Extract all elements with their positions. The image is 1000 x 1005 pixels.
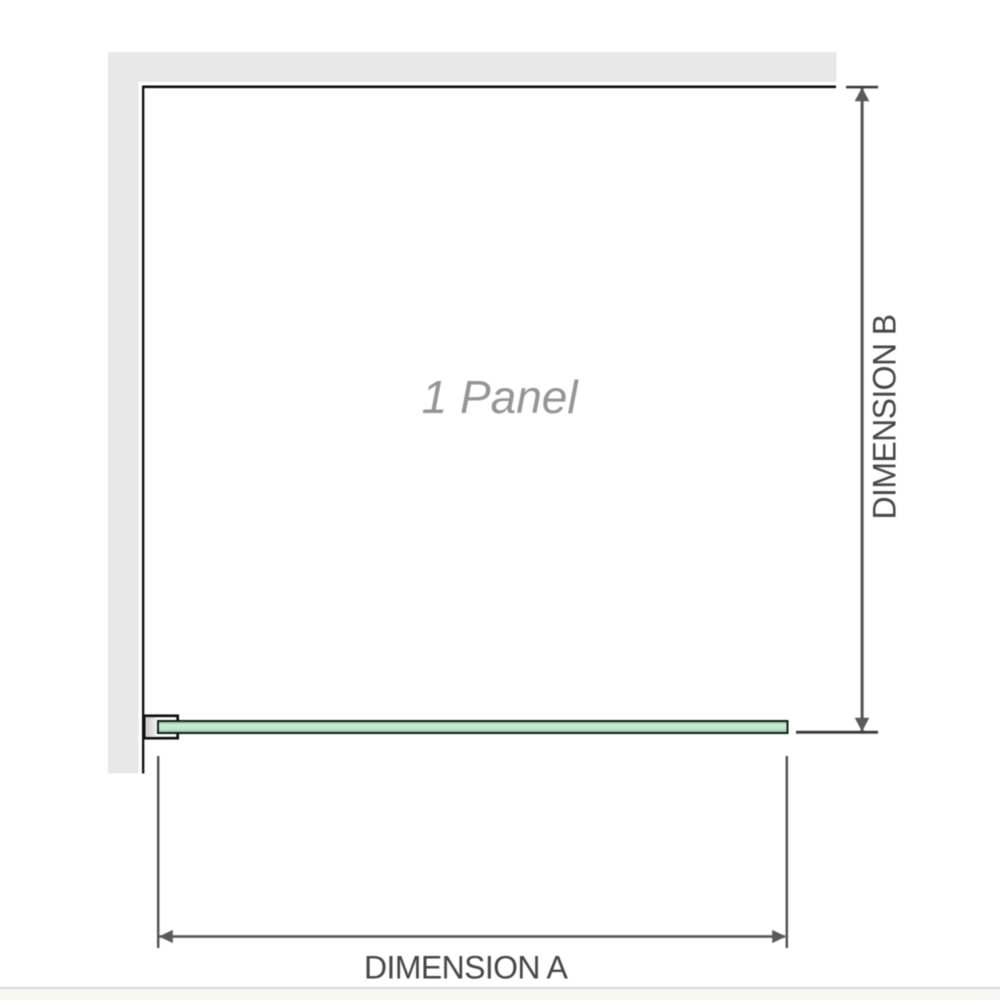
svg-text:DIMENSION B: DIMENSION B: [867, 315, 903, 520]
svg-text:1 Panel: 1 Panel: [422, 371, 580, 423]
svg-text:DIMENSION A: DIMENSION A: [364, 950, 568, 986]
